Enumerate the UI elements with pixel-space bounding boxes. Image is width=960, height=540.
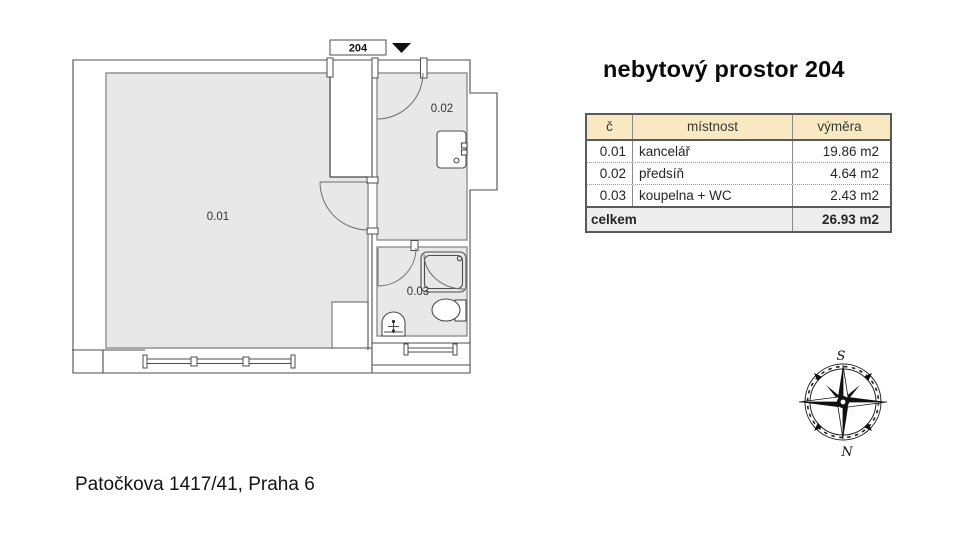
header-area: výměra [792,115,886,139]
table-row: 0.01 kancelář 19.86 m2 [587,141,890,162]
room-003-label: 0.03 [407,286,429,298]
entrance-jamb-strip [372,58,378,78]
footer-area: 26.93 m2 [792,208,886,231]
compass-rose-icon: S N [799,349,887,460]
header-number: č [587,115,632,139]
room-table: č místnost výměra 0.01 kancelář 19.86 m2… [585,113,892,233]
row-number: 0.03 [587,185,632,206]
toilet [432,299,466,321]
compass-north-label: N [840,445,853,460]
address-text: Patočkova 1417/41, Praha 6 [75,474,315,496]
row-room: předsíň [632,163,792,184]
footer-label: celkem [587,208,792,231]
row-room: koupelna + WC [632,185,792,206]
page-title: nebytový prostor 204 [603,56,903,83]
door-office-jamb-bottom [367,228,378,234]
header-room: místnost [632,115,792,139]
table-row: 0.03 koupelna + WC 2.43 m2 [587,184,890,206]
floor-plan: 204 [72,40,497,373]
washbasin-hall [437,131,467,168]
row-number: 0.01 [587,141,632,162]
row-area: 19.86 m2 [792,141,886,162]
room-table-body: 0.01 kancelář 19.86 m2 0.02 předsíň 4.64… [587,141,890,206]
room-001-label: 0.01 [207,211,229,223]
row-area: 4.64 m2 [792,163,886,184]
unit-label-text: 204 [349,43,368,55]
compass-south-label: S [837,349,846,364]
table-row: 0.02 předsíň 4.64 m2 [587,162,890,184]
entrance-arrow-icon [392,43,411,53]
row-room: kancelář [632,141,792,162]
row-number: 0.02 [587,163,632,184]
door-bath-jamb [411,241,418,251]
room-table-header: č místnost výměra [587,115,890,141]
window-bath [404,344,457,355]
row-area: 2.43 m2 [792,185,886,206]
window-office [143,355,295,368]
washbasin-bathroom [382,312,405,336]
door-office-jamb-top [367,177,378,183]
room-002-label: 0.02 [431,103,453,115]
entrance-jamb-left [327,58,333,77]
entrance-jamb-right [421,58,428,78]
room-table-footer: celkem 26.93 m2 [587,206,890,231]
